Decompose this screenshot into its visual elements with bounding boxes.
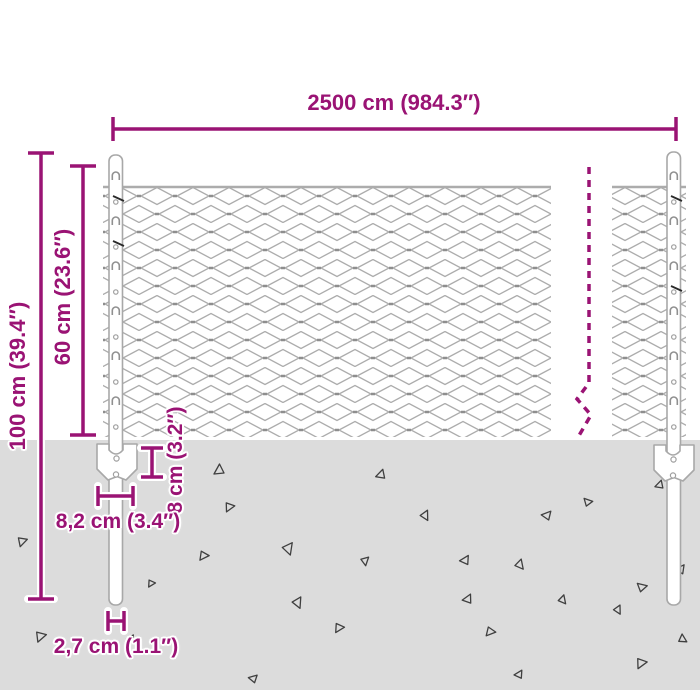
break-line — [577, 167, 591, 439]
dim-plate-width-label: 8,2 cm (3.4″) — [56, 510, 180, 534]
fence-post-left — [109, 155, 124, 605]
product-dimension-diagram: 2500 cm (984.3″) 100 cm (39.4″) 60 cm (2… — [0, 0, 700, 700]
dim-total-width-line — [113, 117, 676, 141]
fence-post-right — [667, 152, 682, 605]
dim-mesh-height-label: 60 cm (23.6″) — [50, 229, 76, 366]
dim-plate-height-label: 8 cm (3.2″) — [164, 407, 188, 514]
dim-total-height-label: 100 cm (39.4″) — [5, 302, 31, 451]
mesh-section-left — [103, 187, 551, 437]
dim-post-width-label: 2,7 cm (1.1″) — [54, 635, 178, 659]
dim-total-width-label: 2500 cm (984.3″) — [307, 90, 480, 116]
